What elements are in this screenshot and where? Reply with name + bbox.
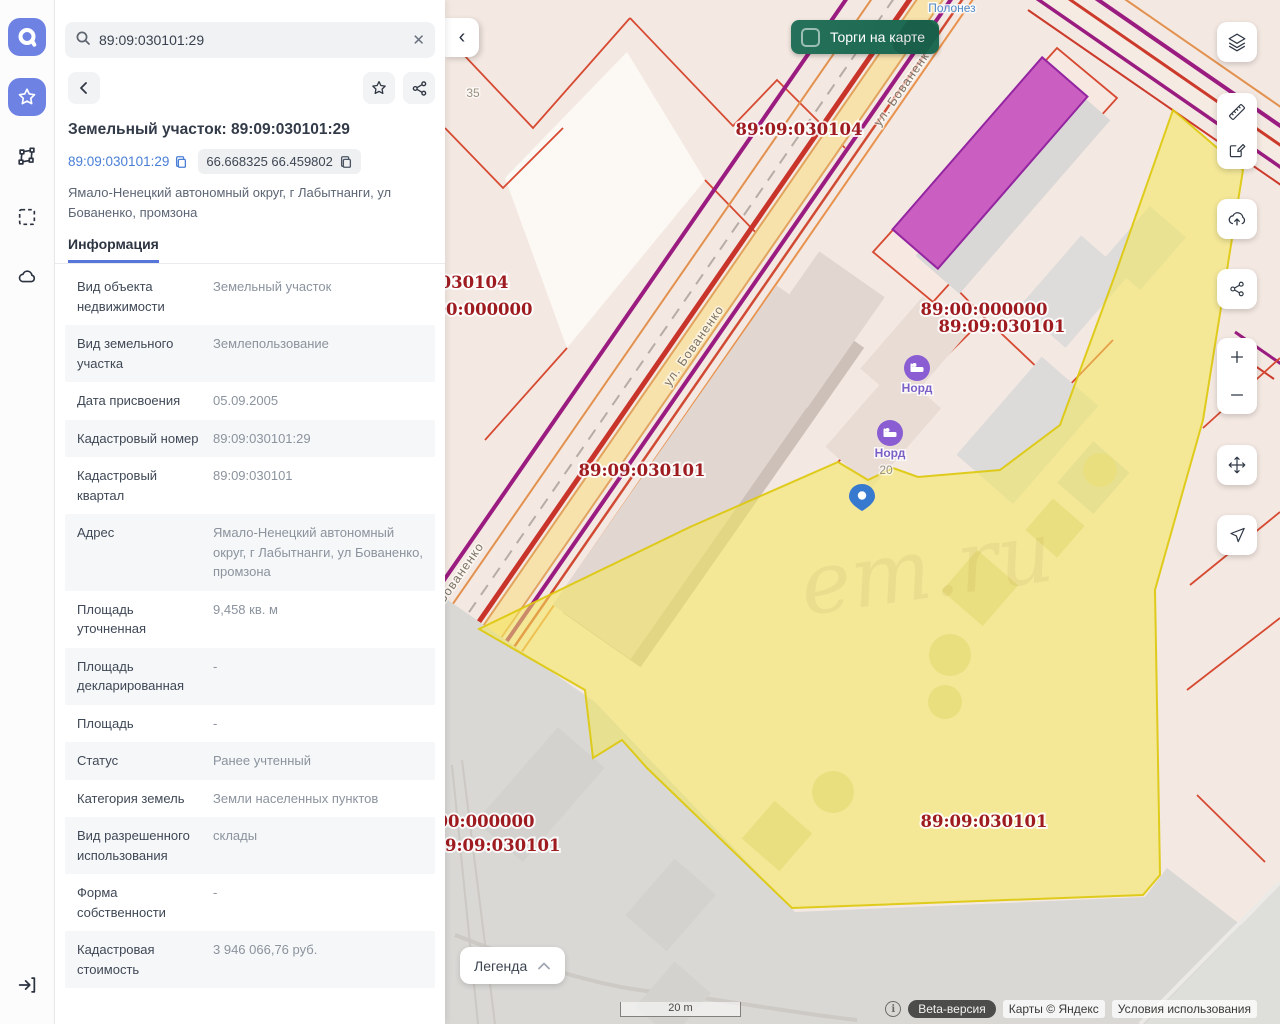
info-row-value: 9,458 кв. м bbox=[213, 600, 423, 639]
sign-in-button[interactable] bbox=[8, 966, 46, 1004]
info-row-value: Землепользование bbox=[213, 334, 423, 373]
map-label: 89:09:030101 bbox=[579, 461, 706, 480]
app-logo-icon[interactable] bbox=[8, 18, 46, 56]
map-label: 89:00:000000 bbox=[445, 300, 533, 319]
info-row: Кадастровый квартал89:09:030101 bbox=[65, 457, 435, 514]
clear-search-icon[interactable]: ✕ bbox=[412, 31, 425, 49]
map-canvas[interactable]: ет.ru 89:09:03010489:09:03010489:00:0000… bbox=[445, 0, 1280, 1024]
scale-bar: 20 m bbox=[620, 1002, 741, 1017]
measure-draw-group bbox=[1217, 93, 1257, 169]
map-label: Норд bbox=[875, 446, 906, 460]
auction-toggle[interactable]: Торги на карте bbox=[791, 20, 939, 54]
search-input[interactable] bbox=[99, 32, 404, 48]
area-select-button[interactable] bbox=[8, 198, 46, 236]
info-row-value: - bbox=[213, 657, 423, 696]
icon-rail bbox=[0, 0, 55, 1024]
cloud-upload-icon bbox=[1224, 206, 1250, 232]
upload-button[interactable] bbox=[1217, 199, 1257, 239]
polygon-select-button[interactable] bbox=[8, 138, 46, 176]
address-text: Ямало-Ненецкий автономный округ, г Лабыт… bbox=[68, 183, 432, 222]
auction-toggle-label: Торги на карте bbox=[830, 29, 925, 45]
back-button[interactable] bbox=[68, 72, 100, 104]
nord-marker[interactable] bbox=[904, 355, 930, 381]
locate-button[interactable] bbox=[1217, 515, 1257, 555]
info-row-label: Кадастровая стоимость bbox=[77, 940, 205, 979]
info-row: СтатусРанее учтенный bbox=[65, 742, 435, 780]
info-row: Площадь декларированная- bbox=[65, 648, 435, 705]
cloud-button[interactable] bbox=[8, 258, 46, 296]
info-row-value: Земли населенных пунктов bbox=[213, 789, 423, 809]
copy-icon bbox=[174, 155, 188, 169]
scale-label: 20 m bbox=[668, 1002, 692, 1014]
zoom-in-button[interactable] bbox=[1217, 338, 1257, 376]
terms-link[interactable]: Условия использования bbox=[1112, 1000, 1257, 1018]
ruler-icon bbox=[1225, 100, 1249, 124]
info-row-label: Статус bbox=[77, 751, 205, 771]
copyright-link[interactable]: Карты © Яндекс bbox=[1003, 1000, 1105, 1018]
details-panel: ✕ Земельный участок: 89:09:030101:29 bbox=[55, 0, 445, 1024]
map-label: 89:09:030104 bbox=[445, 273, 509, 292]
info-row-value: Ямало-Ненецкий автономный округ, г Лабыт… bbox=[213, 523, 423, 582]
info-row: Вид разрешенного использованиясклады bbox=[65, 817, 435, 874]
map-label: 89:09:030101 bbox=[939, 317, 1066, 336]
info-row-value: 05.09.2005 bbox=[213, 391, 423, 411]
info-row-value: - bbox=[213, 714, 423, 734]
map-label: 89:09:030101 bbox=[921, 812, 1048, 831]
info-row-label: Категория земель bbox=[77, 789, 205, 809]
cadastral-number-link[interactable]: 89:09:030101:29 bbox=[68, 154, 188, 169]
map-label: Полонез bbox=[928, 1, 976, 15]
measure-button[interactable] bbox=[1217, 93, 1257, 131]
pan-button[interactable] bbox=[1217, 445, 1257, 485]
id-chips: 89:09:030101:29 66.668325 66.459802 bbox=[68, 149, 432, 174]
info-icon[interactable]: i bbox=[885, 1001, 901, 1017]
info-row-label: Вид объекта недвижимости bbox=[77, 277, 205, 316]
layers-icon bbox=[1224, 29, 1250, 55]
zoom-group bbox=[1217, 338, 1257, 414]
map-attribution: i Beta-версия Карты © Яндекс Условия исп… bbox=[885, 1000, 1257, 1018]
info-row: Площадь- bbox=[65, 705, 435, 743]
search-bar[interactable]: ✕ bbox=[65, 22, 435, 58]
info-row: Кадастровая стоимость3 946 066,76 руб. bbox=[65, 931, 435, 988]
info-row-label: Форма собственности bbox=[77, 883, 205, 922]
info-table: Вид объекта недвижимостиЗемельный участо… bbox=[65, 268, 435, 988]
collapse-panel-button[interactable]: ‹ bbox=[445, 18, 479, 57]
draw-button[interactable] bbox=[1217, 131, 1257, 169]
cadastral-map-app: ✕ Земельный участок: 89:09:030101:29 bbox=[0, 0, 1280, 1024]
layers-button[interactable] bbox=[1217, 22, 1257, 62]
info-row-value: склады bbox=[213, 826, 423, 865]
info-row-value: Земельный участок bbox=[213, 277, 423, 316]
minus-icon bbox=[1225, 383, 1249, 407]
info-row-value: 89:09:030101:29 bbox=[213, 429, 423, 449]
legend-button[interactable]: Легенда bbox=[460, 947, 565, 984]
info-row-label: Вид разрешенного использования bbox=[77, 826, 205, 865]
zoom-out-button[interactable] bbox=[1217, 376, 1257, 414]
map-label: 89:09:030101 bbox=[445, 836, 561, 855]
share-button[interactable] bbox=[403, 72, 435, 104]
info-row: Вид объекта недвижимостиЗемельный участо… bbox=[65, 268, 435, 325]
map-label: 35 bbox=[466, 86, 480, 100]
map-share-button[interactable] bbox=[1217, 269, 1257, 309]
info-row-label: Площадь декларированная bbox=[77, 657, 205, 696]
map-label: 89:00:000000 bbox=[445, 812, 535, 831]
map-label: Норд bbox=[902, 381, 933, 395]
info-row-label: Дата присвоения bbox=[77, 391, 205, 411]
info-row-label: Кадастровый номер bbox=[77, 429, 205, 449]
info-row: Дата присвоения05.09.2005 bbox=[65, 382, 435, 420]
info-row: Категория земельЗемли населенных пунктов bbox=[65, 780, 435, 818]
coordinates-chip[interactable]: 66.668325 66.459802 bbox=[198, 149, 361, 174]
nord-marker[interactable] bbox=[877, 420, 903, 446]
locate-arrow-icon bbox=[1225, 523, 1249, 547]
details-header bbox=[68, 72, 435, 104]
page-title: Земельный участок: 89:09:030101:29 bbox=[68, 121, 432, 139]
beta-badge: Beta-версия bbox=[908, 1000, 995, 1018]
info-row-label: Адрес bbox=[77, 523, 205, 582]
info-row: Вид земельного участкаЗемлепользование bbox=[65, 325, 435, 382]
info-row: Форма собственности- bbox=[65, 874, 435, 931]
info-row-value: 89:09:030101 bbox=[213, 466, 423, 505]
favorite-button[interactable] bbox=[363, 72, 395, 104]
search-icon bbox=[75, 30, 91, 51]
info-row: АдресЯмало-Ненецкий автономный округ, г … bbox=[65, 514, 435, 591]
chevron-up-icon bbox=[537, 961, 551, 971]
info-row-value: Ранее учтенный bbox=[213, 751, 423, 771]
info-row-value: - bbox=[213, 883, 423, 922]
share-icon bbox=[1225, 277, 1249, 301]
info-row-label: Вид земельного участка bbox=[77, 334, 205, 373]
map-graphics: ет.ru 89:09:03010489:09:03010489:00:0000… bbox=[445, 0, 1280, 1024]
plus-icon bbox=[1225, 345, 1249, 369]
info-row: Площадь уточненная9,458 кв. м bbox=[65, 591, 435, 648]
copy-icon bbox=[339, 155, 353, 169]
info-row: Кадастровый номер89:09:030101:29 bbox=[65, 420, 435, 458]
legend-label: Легенда bbox=[474, 958, 527, 974]
info-row-label: Площадь bbox=[77, 714, 205, 734]
favorites-button[interactable] bbox=[8, 78, 46, 116]
tab-information[interactable]: Информация bbox=[68, 236, 159, 263]
auction-checkbox[interactable] bbox=[801, 28, 820, 47]
move-icon bbox=[1225, 453, 1249, 477]
map-label: 20 bbox=[879, 463, 893, 477]
info-row-value: 3 946 066,76 руб. bbox=[213, 940, 423, 979]
tab-bar: Информация bbox=[55, 236, 445, 264]
info-row-label: Кадастровый квартал bbox=[77, 466, 205, 505]
edit-icon bbox=[1225, 138, 1249, 162]
info-row-label: Площадь уточненная bbox=[77, 600, 205, 639]
map-label: 89:09:030104 bbox=[736, 120, 863, 139]
